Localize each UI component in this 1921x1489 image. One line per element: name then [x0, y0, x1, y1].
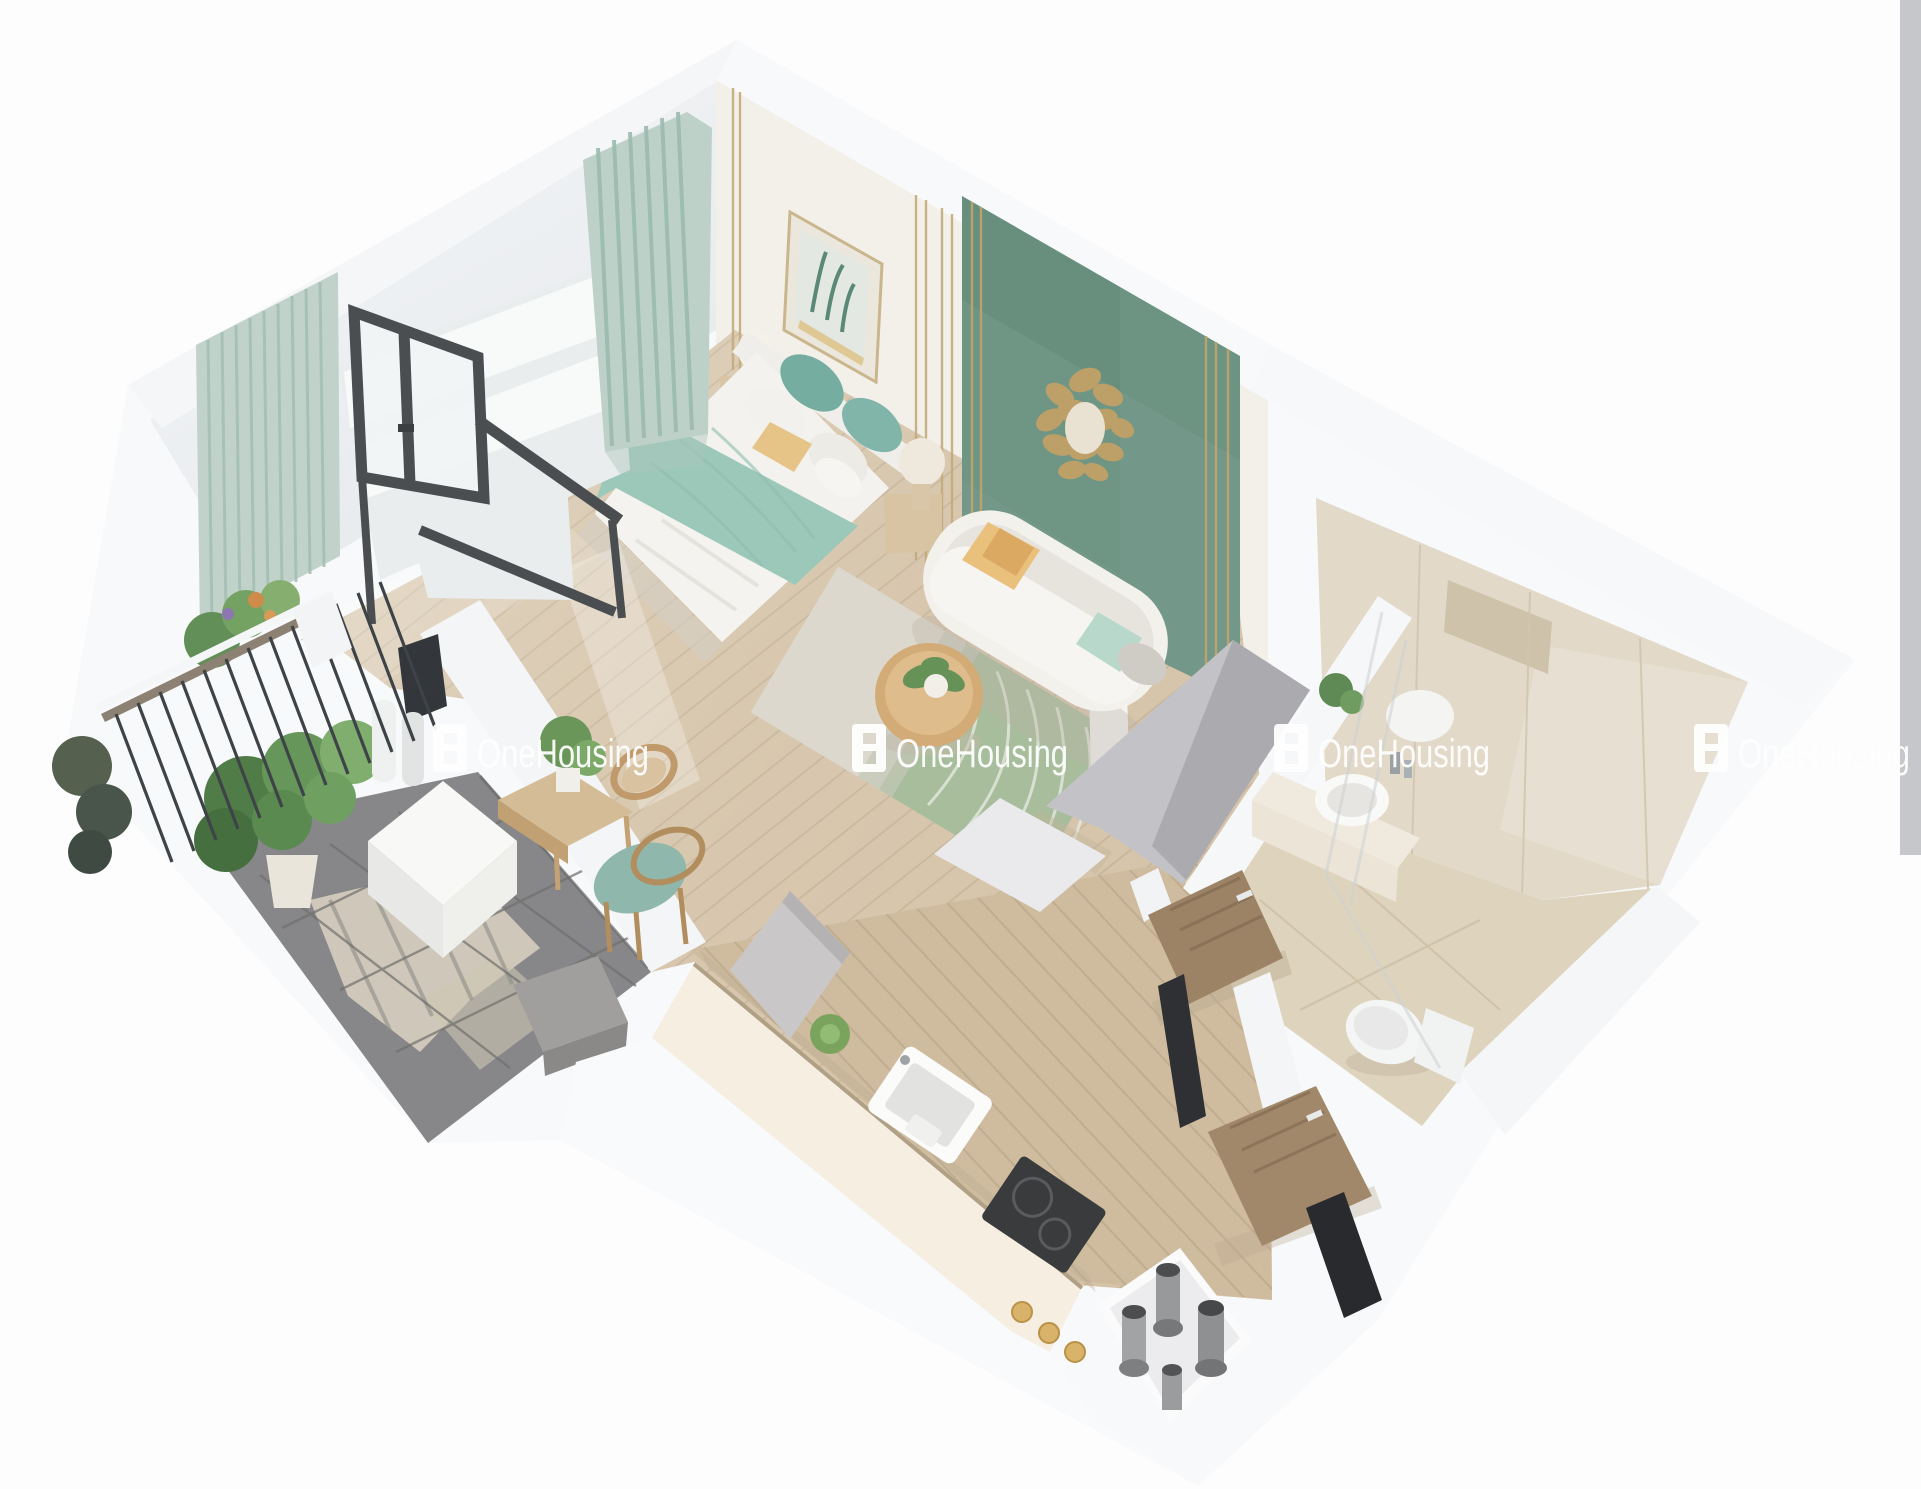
svg-text:OneHousing: OneHousing [1318, 732, 1490, 776]
svg-text:OneHousing: OneHousing [477, 732, 649, 776]
svg-text:OneHousing: OneHousing [896, 732, 1068, 776]
svg-text:OneHousing: OneHousing [1738, 732, 1910, 776]
